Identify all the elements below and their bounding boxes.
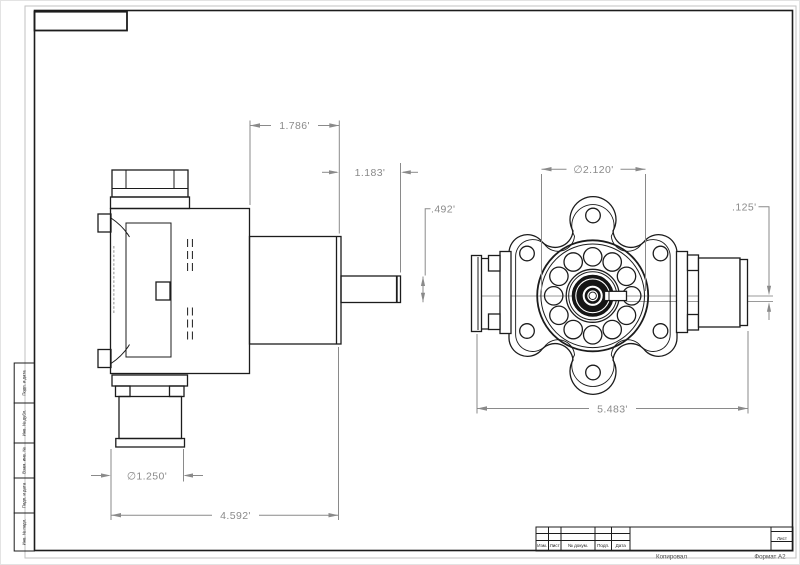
margin-box-3: Взам. инв. № (22, 447, 27, 474)
footer-format-label: Формат А2 (754, 554, 786, 561)
keyway-slot (605, 291, 627, 300)
dimension-hose-diameter: ∅1.250' (91, 449, 203, 520)
top-left-stamp-box (35, 12, 128, 31)
margin-box-4: Подп. и дата (22, 482, 27, 508)
dim-bearing-diameter-label: ∅2.120' (573, 164, 613, 176)
front-right-port (677, 252, 748, 333)
footer-copied-label: Копировал (656, 554, 687, 561)
dim-front-overall-label: 5.483' (597, 404, 628, 416)
side-shaft (341, 276, 401, 303)
titleblock-col-podp: Подп. (597, 543, 609, 548)
side-top-fitting (111, 170, 190, 209)
dimension-shaft-diameter: .492' (421, 203, 456, 302)
dim-top-width-label: 1.786' (279, 120, 310, 132)
shaft-center-hole (589, 292, 596, 299)
margin-box-1: Подп. и дата (22, 370, 27, 396)
margin-box-5: Инв. № подл. (22, 519, 27, 546)
front-left-port (472, 252, 512, 334)
dim-step-offset-label: .125' (732, 201, 756, 213)
side-pump-body (98, 209, 250, 374)
title-block: Изм. Лист № докум. Подп. Дата Лист Копир… (536, 527, 793, 561)
titleblock-col-data: Дата (616, 543, 627, 548)
side-bottom-fitting (112, 375, 188, 447)
dim-hose-diameter-label: ∅1.250' (127, 470, 167, 482)
margin-box-2: Инв. № дубл. (22, 410, 27, 437)
titleblock-col-list: Лист (550, 543, 561, 548)
drawing-sheet: 1.786' 1.183' .492' ∅1.250' (0, 0, 800, 565)
engineering-drawing-canvas: 1.786' 1.183' .492' ∅1.250' (0, 0, 800, 565)
titleblock-col-doc: № докум. (568, 543, 588, 548)
titleblock-col-izm: Изм. (537, 543, 547, 548)
front-view: ∅2.120' .125' 5.483' (472, 163, 774, 416)
margin-strip: Подп. и дата Инв. № дубл. Взам. инв. № П… (14, 363, 34, 551)
side-motor-housing (250, 237, 342, 345)
dimension-top-width: 1.786' (250, 120, 339, 234)
dim-shaft-length-label: 1.183' (355, 167, 386, 179)
side-view: 1.786' 1.183' .492' ∅1.250' (91, 120, 455, 522)
titleblock-sheet-label: Лист (777, 536, 788, 541)
dim-shaft-diameter-label: .492' (431, 203, 455, 215)
dim-side-overall-label: 4.592' (220, 510, 251, 522)
